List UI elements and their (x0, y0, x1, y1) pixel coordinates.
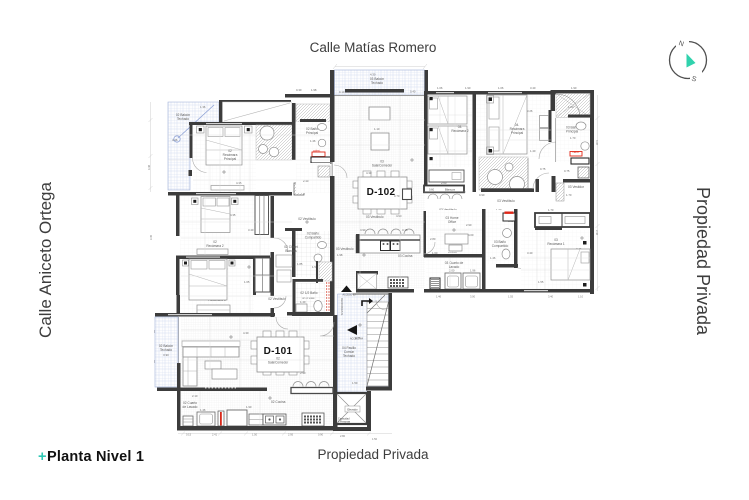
svg-text:6 Personas: 6 Personas (338, 421, 351, 424)
svg-text:1.70: 1.70 (548, 208, 554, 212)
svg-text:1.46: 1.46 (490, 256, 496, 260)
svg-text:1.55: 1.55 (508, 295, 514, 299)
svg-text:Calle Aniceto Ortega: Calle Aniceto Ortega (36, 181, 55, 337)
svg-text:1.46: 1.46 (200, 408, 206, 412)
svg-text:1.65: 1.65 (244, 280, 250, 284)
svg-text:1.55: 1.55 (538, 280, 544, 284)
svg-text:MEDIDORES M.: MEDIDORES M. (340, 298, 343, 316)
svg-text:Propiedad Privada: Propiedad Privada (693, 187, 713, 336)
svg-text:Planta Nivel 1: Planta Nivel 1 (47, 449, 144, 465)
svg-text:4.90: 4.90 (396, 214, 402, 218)
svg-text:1.10: 1.10 (578, 295, 584, 299)
svg-text:de Lavado: de Lavado (183, 405, 198, 409)
svg-text:3.40: 3.40 (548, 295, 554, 299)
svg-text:0.75: 0.75 (564, 169, 570, 173)
svg-text:1.46: 1.46 (436, 295, 442, 299)
svg-text:0.90: 0.90 (479, 193, 485, 197)
svg-text:1.10: 1.10 (374, 127, 380, 131)
svg-text:Blancos: Blancos (445, 188, 456, 192)
svg-text:Recámara 2: Recámara 2 (206, 244, 224, 248)
svg-text:0.90: 0.90 (318, 433, 324, 437)
svg-text:1.50: 1.50 (372, 437, 378, 441)
svg-text:1.90: 1.90 (571, 86, 577, 90)
svg-text:0.75: 0.75 (540, 167, 546, 171)
svg-text:Propiedad Privada: Propiedad Privada (317, 447, 429, 462)
svg-text:02 Vestíbulo: 02 Vestíbulo (268, 297, 286, 301)
svg-text:2.80: 2.80 (430, 237, 436, 241)
svg-text:03 Vestíbulo: 03 Vestíbulo (336, 247, 354, 251)
svg-text:1.40: 1.40 (530, 149, 536, 153)
svg-text:D-102: D-102 (367, 187, 396, 198)
svg-text:0.60: 0.60 (429, 188, 435, 192)
svg-text:4.30: 4.30 (595, 140, 599, 146)
svg-text:calent.: calent. (573, 151, 580, 154)
svg-text:1.00: 1.00 (568, 105, 574, 109)
svg-text:4.35: 4.35 (236, 181, 242, 185)
svg-text:Sala/Comedor: Sala/Comedor (268, 361, 289, 365)
svg-text:1.50: 1.50 (352, 381, 358, 385)
svg-text:2.90: 2.90 (466, 223, 472, 227)
svg-text:1.36: 1.36 (200, 105, 206, 109)
svg-text:0.90: 0.90 (163, 353, 169, 357)
svg-text:3.40: 3.40 (530, 86, 536, 90)
svg-text:Compartido: Compartido (492, 244, 509, 248)
svg-text:Sala/Comedor: Sala/Comedor (372, 164, 393, 168)
svg-text:Techado: Techado (177, 117, 189, 121)
svg-text:2.95: 2.95 (288, 433, 294, 437)
svg-text:0.15: 0.15 (186, 433, 192, 437)
svg-text:Office: Office (448, 220, 456, 224)
svg-text:3.15: 3.15 (402, 228, 408, 232)
svg-text:1.60: 1.60 (432, 251, 438, 255)
svg-text:escritorio: escritorio (448, 251, 458, 254)
svg-text:Techado: Techado (343, 354, 355, 358)
svg-text:1.40: 1.40 (300, 300, 306, 304)
svg-text:1.06: 1.06 (437, 86, 443, 90)
svg-text:Recámara 1: Recámara 1 (547, 242, 565, 246)
svg-text:1.70: 1.70 (566, 193, 572, 197)
svg-text:3.00: 3.00 (470, 295, 476, 299)
svg-text:Recámara 2: Recámara 2 (451, 129, 469, 133)
svg-text:Calle Matías Romero: Calle Matías Romero (310, 40, 437, 55)
svg-text:ACCESO 04: ACCESO 04 (350, 338, 364, 341)
svg-text:1.50: 1.50 (252, 433, 258, 437)
svg-text:Blancos: Blancos (285, 249, 297, 253)
svg-text:0.40: 0.40 (410, 90, 416, 94)
svg-text:3.40: 3.40 (248, 228, 254, 232)
svg-text:3.40: 3.40 (527, 251, 533, 255)
svg-text:Elevador: Elevador (347, 408, 357, 412)
svg-text:03 Vestíbulo: 03 Vestíbulo (366, 215, 384, 219)
svg-text:1.90: 1.90 (246, 405, 252, 409)
svg-text:2.40: 2.40 (303, 179, 309, 183)
svg-text:Techado: Techado (371, 81, 383, 85)
svg-text:Principal: Principal (511, 131, 524, 135)
svg-text:2.10: 2.10 (192, 394, 198, 398)
svg-text:2.90: 2.90 (300, 371, 306, 375)
svg-text:3.26: 3.26 (527, 109, 533, 113)
svg-text:0.10: 0.10 (339, 90, 345, 94)
svg-text:4.00: 4.00 (468, 233, 474, 237)
svg-text:0.30: 0.30 (296, 88, 302, 92)
svg-text:2.46: 2.46 (595, 230, 599, 236)
svg-text:1.98: 1.98 (337, 253, 343, 257)
svg-text:1.90: 1.90 (465, 86, 471, 90)
svg-text:Techado: Techado (160, 348, 172, 352)
svg-text:calent.: calent. (313, 149, 321, 153)
svg-text:Principal: Principal (224, 157, 237, 161)
svg-text:4.30: 4.30 (366, 171, 372, 175)
svg-text:Compartido: Compartido (305, 236, 322, 240)
svg-text:02 1/2 Baño: 02 1/2 Baño (300, 291, 317, 295)
svg-text:4.30: 4.30 (370, 73, 376, 77)
svg-text:0.90: 0.90 (360, 228, 366, 232)
svg-text:2.80: 2.80 (340, 434, 346, 438)
svg-text:+: + (38, 449, 46, 465)
svg-text:4.35: 4.35 (230, 213, 236, 217)
svg-text:0.70: 0.70 (394, 194, 400, 198)
svg-text:03 Vestidor: 03 Vestidor (568, 185, 585, 189)
svg-text:3.45: 3.45 (149, 234, 153, 240)
svg-text:4.46: 4.46 (172, 138, 178, 142)
svg-text:4.46: 4.46 (147, 164, 151, 170)
svg-text:1.70: 1.70 (570, 136, 576, 140)
svg-text:2.41: 2.41 (212, 433, 218, 437)
svg-text:02 Cocina: 02 Cocina (271, 400, 286, 404)
svg-text:1.85: 1.85 (297, 262, 303, 266)
svg-text:4.30: 4.30 (243, 331, 249, 335)
svg-text:03 Vestíbulo: 03 Vestíbulo (497, 199, 515, 203)
svg-text:1.46: 1.46 (310, 139, 316, 143)
svg-text:1.06: 1.06 (498, 86, 504, 90)
svg-text:1.96: 1.96 (470, 269, 476, 273)
svg-text:1.98: 1.98 (311, 88, 317, 92)
svg-text:D-101: D-101 (264, 346, 293, 357)
svg-text:Principal: Principal (306, 131, 319, 135)
